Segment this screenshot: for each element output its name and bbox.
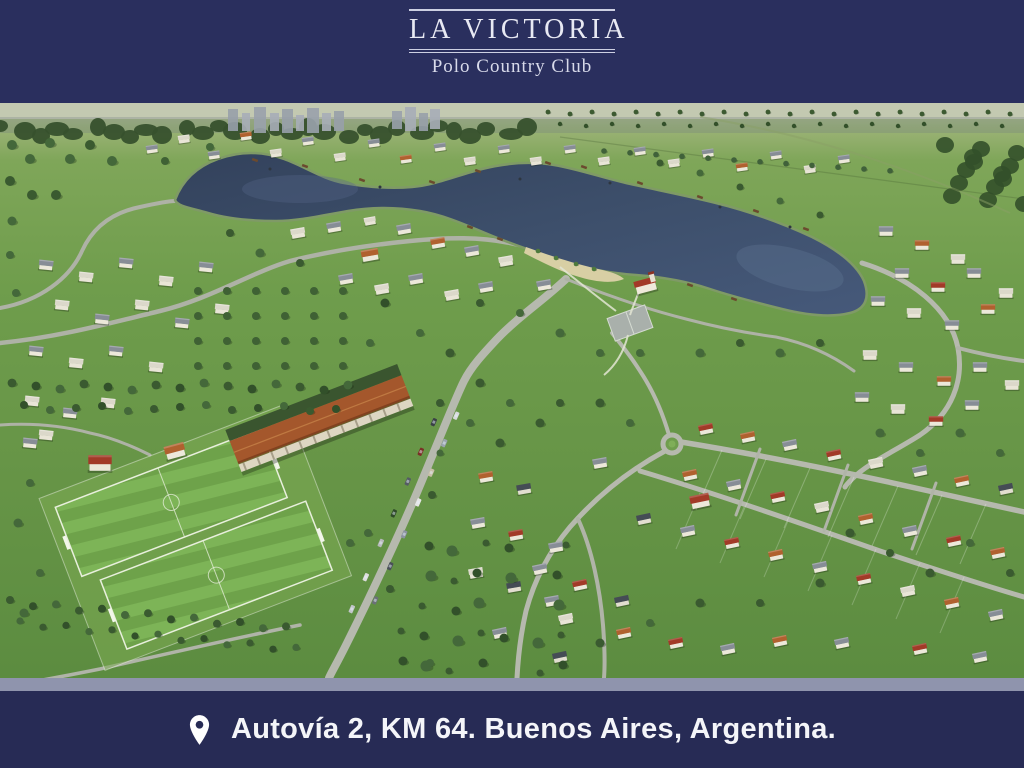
masterplan-aerial-render xyxy=(0,103,1024,678)
brand-logo: LA VICTORIA Polo Country Club xyxy=(409,9,615,78)
separator-strip xyxy=(0,678,1024,691)
horizon-haze xyxy=(0,103,1024,119)
brand-title: LA VICTORIA xyxy=(409,13,615,46)
flyer: LA VICTORIA Polo Country Club xyxy=(0,0,1024,768)
roundabout xyxy=(663,435,681,453)
brand-subtitle: Polo Country Club xyxy=(409,56,615,78)
aerial-map-svg xyxy=(0,103,1024,678)
logo-rule-bottom xyxy=(409,49,615,53)
logo-rule-top xyxy=(409,9,615,11)
address-text: Autovía 2, KM 64. Buenos Aires, Argentin… xyxy=(231,713,836,746)
footer-band: Autovía 2, KM 64. Buenos Aires, Argentin… xyxy=(0,691,1024,768)
header-band: LA VICTORIA Polo Country Club xyxy=(0,0,1024,103)
location-pin-icon xyxy=(188,714,211,746)
